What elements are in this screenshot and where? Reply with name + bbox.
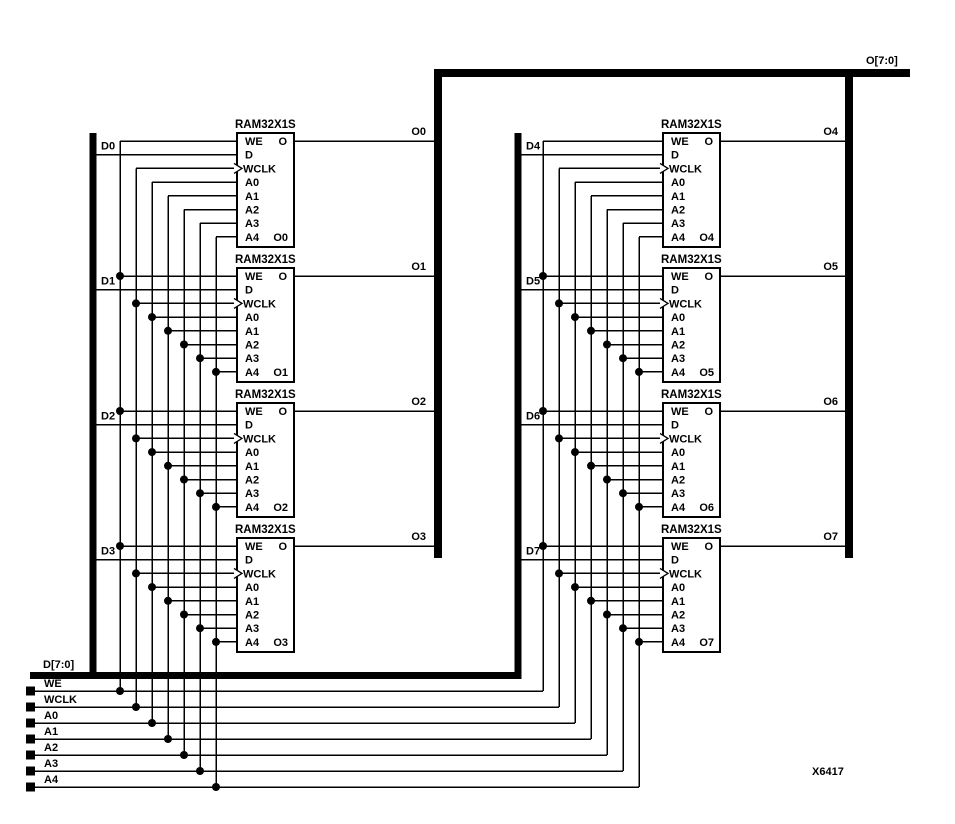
pin-label-we: WE [671,136,689,148]
net-label-d1: D1 [101,276,115,288]
instance-label: O0 [273,232,288,244]
input-bus-riser-right [515,133,522,679]
junction-dot-a3-o2 [196,489,204,497]
input-bus [30,672,521,679]
junction-dot-a3-o3 [196,624,204,632]
pin-label-d: D [245,150,253,162]
terminal-square-a0 [26,719,35,728]
junction-dot-a4 [212,783,220,791]
net-label-d5: D5 [526,276,540,288]
pin-label-a0: A0 [671,312,685,324]
junction-dot-we-o1 [116,272,124,280]
net-label-o1: O1 [411,261,426,273]
ram-block-o2: RAM32X1SWEDWCLKA0A1A2A3A4OO2 [234,389,296,517]
junction-dot-a4-o5 [635,368,643,376]
signal-label-a2: A2 [44,742,58,754]
pin-label-a1: A1 [671,596,685,608]
instance-label: O7 [699,637,714,649]
pin-label-wclk: WCLK [243,298,276,310]
net-label-d7: D7 [526,546,540,558]
pin-label-wclk: WCLK [669,568,702,580]
pin-label-a1: A1 [245,326,259,338]
pin-label-a1: A1 [671,461,685,473]
junction-dot-we-o6 [539,407,547,415]
instance-label: O4 [699,232,715,244]
block-title: RAM32X1S [235,254,296,266]
junction-dot-wclk-o7 [555,569,563,577]
block-title: RAM32X1S [661,389,722,401]
junction-dot-we [116,687,124,695]
junction-dot-a0-o6 [571,448,579,456]
pin-label-o: O [704,271,713,283]
pin-label-a4: A4 [671,367,686,379]
signal-label-we: WE [44,678,62,690]
terminal-square-we [26,687,35,696]
block-title: RAM32X1S [235,389,296,401]
junction-dot-a3-o5 [619,354,627,362]
pin-label-d: D [671,285,679,297]
pin-label-a4: A4 [245,232,260,244]
pin-label-we: WE [245,136,263,148]
net-label-o7: O7 [823,531,838,543]
junction-dot-we-o5 [539,272,547,280]
pin-label-wclk: WCLK [243,568,276,580]
ram-block-o1: RAM32X1SWEDWCLKA0A1A2A3A4OO1 [234,254,296,382]
signal-label-a4: A4 [44,774,59,786]
junction-dot-a4-o2 [212,503,220,511]
instance-label: O5 [699,367,714,379]
pin-label-d: D [671,420,679,432]
pin-label-a4: A4 [671,502,686,514]
net-label-d3: D3 [101,546,115,558]
ram-block-o0: RAM32X1SWEDWCLKA0A1A2A3A4OO0 [234,119,296,247]
ram-block-o3: RAM32X1SWEDWCLKA0A1A2A3A4OO3 [234,524,296,652]
junction-dot-a2-o5 [603,341,611,349]
pin-label-a0: A0 [671,177,685,189]
pin-label-o: O [278,541,287,553]
block-title: RAM32X1S [661,524,722,536]
pin-label-o: O [704,406,713,418]
pin-label-a3: A3 [671,488,685,500]
pin-label-a1: A1 [671,191,685,203]
pin-label-wclk: WCLK [669,163,702,175]
pin-label-wclk: WCLK [243,163,276,175]
junction-dot-wclk-o2 [132,434,140,442]
bus-network: O[7:0]D[7:0] [30,55,910,679]
terminal-square-a3 [26,767,35,776]
pin-label-d: D [671,150,679,162]
junction-dot-a0-o2 [148,448,156,456]
junction-dot-a0-o5 [571,313,579,321]
output-bus [434,69,910,77]
pin-label-wclk: WCLK [669,433,702,445]
net-label-o4: O4 [823,126,839,138]
junction-dot-we-o7 [539,542,547,550]
junction-dot-a0 [148,719,156,727]
junction-dot-a4-o3 [212,638,220,646]
junction-dot-a2-o3 [180,611,188,619]
ram-block-o6: RAM32X1SWEDWCLKA0A1A2A3A4OO6 [660,389,722,517]
pin-label-wclk: WCLK [669,298,702,310]
junction-dot-a2 [180,751,188,759]
net-label-o6: O6 [823,396,838,408]
input-bus-label: D[7:0] [43,659,75,671]
schematic-page: O[7:0]D[7:0]WEWCLKA0A1A2A3A4D0O0D1O1D2O2… [0,0,955,824]
net-label-d6: D6 [526,411,540,423]
junction-dot-a1-o3 [164,597,172,605]
block-title: RAM32X1S [235,524,296,536]
junction-dot-a4-o7 [635,638,643,646]
pin-label-a2: A2 [245,205,259,217]
pin-label-a4: A4 [245,367,260,379]
output-bus-riser-right [845,69,853,558]
pin-label-a4: A4 [671,637,686,649]
junction-dot-wclk-o6 [555,434,563,442]
junction-dot-a1 [164,735,172,743]
net-label-o5: O5 [823,261,838,273]
junction-dot-wclk [132,703,140,711]
pin-label-o: O [278,271,287,283]
pin-label-a3: A3 [245,218,259,230]
pin-label-a2: A2 [245,475,259,487]
junction-dot-a1-o7 [587,597,595,605]
junction-dot-a3-o1 [196,354,204,362]
junction-dot-a2-o2 [180,476,188,484]
junction-dot-wclk-o5 [555,299,563,307]
figure-ref: X6417 [812,766,844,778]
junction-dot-a2-o6 [603,476,611,484]
pin-label-d: D [245,555,253,567]
pin-label-a4: A4 [245,502,260,514]
input-bus-riser-left [90,133,97,679]
output-bus-label: O[7:0] [866,55,898,67]
signal-label-a3: A3 [44,758,58,770]
pin-label-a3: A3 [671,353,685,365]
ram-block-o5: RAM32X1SWEDWCLKA0A1A2A3A4OO5 [660,254,722,382]
pin-label-a0: A0 [245,447,259,459]
junction-dot-a3-o7 [619,624,627,632]
junction-dot-wclk-o3 [132,569,140,577]
pin-label-a4: A4 [245,637,260,649]
junction-dot-a2-o1 [180,341,188,349]
pin-label-a2: A2 [245,610,259,622]
pin-label-a2: A2 [671,340,685,352]
junction-dot-a2-o7 [603,611,611,619]
junction-dot-a1-o2 [164,462,172,470]
terminal-square-wclk [26,703,35,712]
junction-dot-we-o3 [116,542,124,550]
pin-label-d: D [245,285,253,297]
block-title: RAM32X1S [661,254,722,266]
pin-label-a2: A2 [671,610,685,622]
block-title: RAM32X1S [235,119,296,131]
pin-label-d: D [671,555,679,567]
pin-label-we: WE [245,406,263,418]
pin-label-a2: A2 [671,475,685,487]
pin-label-o: O [704,541,713,553]
net-label-d4: D4 [526,141,541,153]
junction-dot-a1-o1 [164,327,172,335]
signal-label-a0: A0 [44,710,58,722]
pin-label-a1: A1 [245,461,259,473]
pin-label-wclk: WCLK [243,433,276,445]
pin-label-a3: A3 [671,623,685,635]
net-label-d0: D0 [101,141,115,153]
pin-label-a3: A3 [245,623,259,635]
pin-label-a0: A0 [671,582,685,594]
junction-dot-a0-o3 [148,583,156,591]
pin-label-a4: A4 [671,232,686,244]
pin-label-we: WE [245,541,263,553]
terminal-square-a2 [26,751,35,760]
ram32x8s-schematic: O[7:0]D[7:0]WEWCLKA0A1A2A3A4D0O0D1O1D2O2… [0,0,955,824]
ram-block-o4: RAM32X1SWEDWCLKA0A1A2A3A4OO4 [660,119,722,247]
instance-label: O6 [699,502,714,514]
pin-label-a0: A0 [245,582,259,594]
pin-label-a1: A1 [245,191,259,203]
net-label-o2: O2 [411,396,426,408]
control-signal-rails: WEWCLKA0A1A2A3A4 [26,141,639,792]
block-title: RAM32X1S [661,119,722,131]
pin-label-a3: A3 [245,488,259,500]
signal-label-wclk: WCLK [44,694,77,706]
pin-label-a1: A1 [671,326,685,338]
pin-label-o: O [704,136,713,148]
pin-label-d: D [245,420,253,432]
pin-label-we: WE [245,271,263,283]
instance-label: O1 [273,367,288,379]
terminal-square-a4 [26,783,35,792]
net-label-d2: D2 [101,411,115,423]
pin-label-a3: A3 [671,218,685,230]
junction-dot-a4-o1 [212,368,220,376]
pin-label-o: O [278,406,287,418]
pin-label-a0: A0 [245,312,259,324]
instance-label: O2 [273,502,288,514]
junction-dot-a1-o6 [587,462,595,470]
net-label-o0: O0 [411,126,426,138]
pin-label-a0: A0 [245,177,259,189]
junction-dot-a0-o7 [571,583,579,591]
pin-label-a1: A1 [245,596,259,608]
junction-dot-a3 [196,767,204,775]
pin-label-we: WE [671,406,689,418]
junction-dot-a1-o5 [587,327,595,335]
pin-label-a0: A0 [671,447,685,459]
pin-label-we: WE [671,541,689,553]
junction-dot-wclk-o1 [132,299,140,307]
junction-dot-a0-o1 [148,313,156,321]
signal-label-a1: A1 [44,726,58,738]
pin-label-a3: A3 [245,353,259,365]
pin-label-a2: A2 [671,205,685,217]
junction-dot-a3-o6 [619,489,627,497]
junction-dot-we-o2 [116,407,124,415]
output-bus-riser-left [434,69,442,558]
ram-block-o7: RAM32X1SWEDWCLKA0A1A2A3A4OO7 [660,524,722,652]
pin-label-a2: A2 [245,340,259,352]
terminal-square-a1 [26,735,35,744]
pin-label-o: O [278,136,287,148]
instance-label: O3 [273,637,288,649]
pin-label-we: WE [671,271,689,283]
junction-dot-a4-o6 [635,503,643,511]
net-label-o3: O3 [411,531,426,543]
